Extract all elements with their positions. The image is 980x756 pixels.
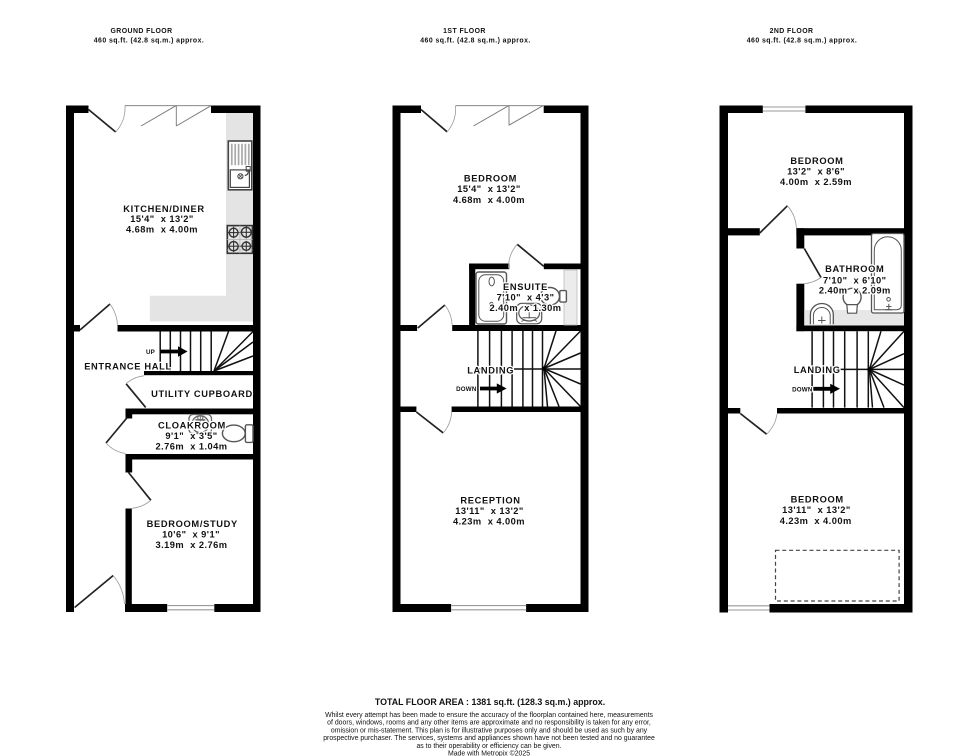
svg-text:4.00m x 2.59m: 4.00m x 2.59m — [780, 177, 852, 187]
svg-text:2.40m x 1.30m: 2.40m x 1.30m — [490, 303, 562, 313]
svg-text:BEDROOM: BEDROOM — [464, 174, 517, 184]
svg-text:2.40m x 2.09m: 2.40m x 2.09m — [819, 286, 891, 296]
svg-text:UP: UP — [146, 349, 155, 356]
svg-text:GROUND FLOOR: GROUND FLOOR — [110, 28, 172, 35]
svg-text:prospective purchaser. The ser: prospective purchaser. The services, sys… — [323, 735, 655, 742]
svg-text:BEDROOM: BEDROOM — [791, 495, 844, 505]
svg-text:460 sq.ft. (42.8 sq.m.) approx: 460 sq.ft. (42.8 sq.m.) approx. — [94, 38, 204, 45]
svg-text:15'4" x 13'2": 15'4" x 13'2" — [457, 184, 520, 194]
svg-text:15'4" x 13'2": 15'4" x 13'2" — [130, 214, 193, 224]
svg-text:BEDROOM: BEDROOM — [790, 156, 843, 166]
svg-text:2.76m x 1.04m: 2.76m x 1.04m — [156, 442, 228, 452]
svg-text:UTILITY CUPBOARD: UTILITY CUPBOARD — [151, 389, 253, 399]
svg-text:460 sq.ft. (42.8 sq.m.) approx: 460 sq.ft. (42.8 sq.m.) approx. — [420, 38, 530, 45]
svg-text:4.68m x 4.00m: 4.68m x 4.00m — [453, 195, 525, 205]
svg-text:KITCHEN/DINER: KITCHEN/DINER — [123, 204, 204, 214]
svg-text:Whilst every attempt has been: Whilst every attempt has been made to en… — [325, 712, 653, 719]
svg-text:ENTRANCE HALL: ENTRANCE HALL — [84, 362, 172, 372]
svg-text:7'10" x 4'3": 7'10" x 4'3" — [497, 293, 555, 303]
svg-text:TOTAL FLOOR AREA : 1381 sq.ft.: TOTAL FLOOR AREA : 1381 sq.ft. (128.3 sq… — [375, 697, 605, 707]
svg-text:BATHROOM: BATHROOM — [825, 264, 884, 274]
svg-text:ENSUITE: ENSUITE — [503, 282, 548, 292]
svg-text:13'11" x 13'2": 13'11" x 13'2" — [455, 506, 524, 516]
svg-text:13'11" x 13'2": 13'11" x 13'2" — [782, 505, 851, 515]
svg-text:Made with Metropix ©2025: Made with Metropix ©2025 — [448, 749, 530, 756]
svg-text:2ND FLOOR: 2ND FLOOR — [770, 28, 814, 35]
svg-text:DOWN: DOWN — [792, 386, 813, 393]
svg-text:RECEPTION: RECEPTION — [460, 495, 520, 505]
svg-text:10'6" x 9'1": 10'6" x 9'1" — [162, 530, 220, 540]
svg-text:as to their operability or eff: as to their operability or efficiency ca… — [416, 743, 561, 750]
svg-text:LANDING: LANDING — [467, 365, 514, 375]
svg-text:13'2" x 8'6": 13'2" x 8'6" — [787, 167, 845, 177]
svg-text:7'10" x 6'10": 7'10" x 6'10" — [823, 275, 886, 285]
svg-text:CLOAKROOM: CLOAKROOM — [158, 421, 226, 431]
svg-text:DOWN: DOWN — [456, 386, 477, 393]
svg-text:9'1" x 3'5": 9'1" x 3'5" — [165, 431, 217, 441]
svg-text:4.23m x 4.00m: 4.23m x 4.00m — [453, 517, 525, 527]
svg-text:3.19m x 2.76m: 3.19m x 2.76m — [156, 540, 228, 550]
svg-text:BEDROOM/STUDY: BEDROOM/STUDY — [147, 519, 238, 529]
svg-text:4.23m x 4.00m: 4.23m x 4.00m — [780, 516, 852, 526]
svg-text:omission or mis-statement. Thi: omission or mis-statement. This plan is … — [331, 727, 648, 734]
svg-text:LANDING: LANDING — [794, 365, 841, 375]
svg-text:of doors, windows, rooms and a: of doors, windows, rooms and any other i… — [327, 720, 651, 727]
svg-text:460 sq.ft. (42.8 sq.m.) approx: 460 sq.ft. (42.8 sq.m.) approx. — [747, 38, 857, 45]
svg-text:4.68m x 4.00m: 4.68m x 4.00m — [126, 225, 198, 235]
svg-text:1ST FLOOR: 1ST FLOOR — [443, 28, 486, 35]
